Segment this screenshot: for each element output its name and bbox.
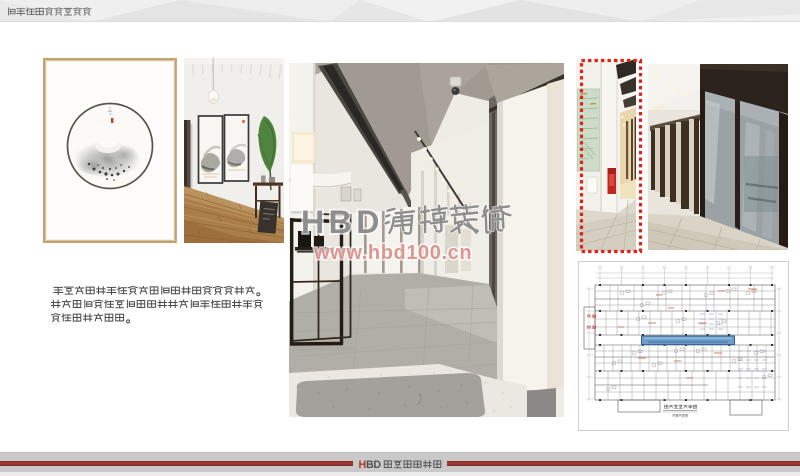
svg-text:HBD: HBD bbox=[359, 459, 382, 471]
